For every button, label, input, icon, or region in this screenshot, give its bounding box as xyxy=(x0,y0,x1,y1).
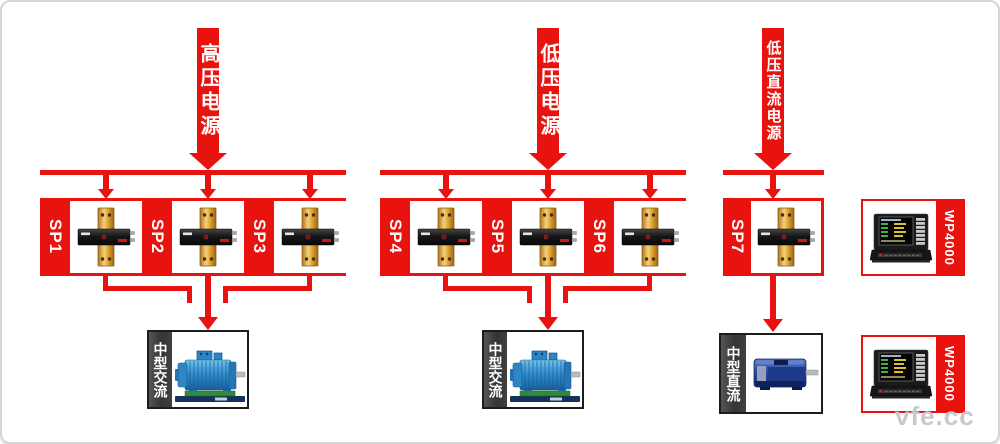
sp-unit-label: SP6 xyxy=(589,219,609,254)
hv-power-banner: 高压电源 xyxy=(197,28,219,153)
banner-label: 高压电源 xyxy=(198,43,218,139)
feed-arrow xyxy=(205,175,211,189)
sp-unit-label: SP1 xyxy=(45,219,65,254)
load-arrow-shaft xyxy=(770,276,776,319)
ac-motor-box-2: 中型交流 xyxy=(482,330,584,409)
lv-power-banner: 低压电源 xyxy=(537,28,559,153)
converge-line xyxy=(443,286,532,291)
wp4000-box-1: WP4000 xyxy=(861,199,965,276)
sp-unit-label: SP4 xyxy=(385,219,405,254)
sp5-label-strip: SP5 xyxy=(482,198,512,276)
feed-arrow xyxy=(307,175,313,189)
diagram-canvas: 高压电源 低压电源 低压直流电源 SP1 xyxy=(0,0,1000,444)
motor-label-strip: 中型交流 xyxy=(484,332,507,407)
bus-line-hv xyxy=(40,170,346,175)
lv-banner-arrowhead-icon xyxy=(529,153,567,170)
converge-line xyxy=(223,286,228,303)
sp6-label-strip: SP6 xyxy=(584,198,614,276)
load-arrow-shaft xyxy=(205,276,211,317)
load-arrowhead-icon xyxy=(198,317,218,330)
sp-unit-label: SP7 xyxy=(727,219,747,254)
sp7-label-strip: SP7 xyxy=(723,198,751,276)
converge-line xyxy=(187,286,192,303)
sp-transducer-image xyxy=(417,207,475,267)
sp-group-1: SP1 SP2 xyxy=(40,198,346,276)
lvdc-banner-arrowhead-icon xyxy=(754,153,792,170)
sp-group-2: SP4 SP5 xyxy=(380,198,686,276)
sp2-device-box xyxy=(172,201,244,273)
motor-type-label: 中型交流 xyxy=(489,342,503,398)
lvdc-power-banner: 低压直流电源 xyxy=(762,28,784,153)
sp-transducer-image xyxy=(77,207,135,267)
feed-arrow xyxy=(443,175,449,189)
feed-arrow xyxy=(647,175,653,189)
ac-motor-image xyxy=(507,332,582,404)
sp-transducer-image xyxy=(281,207,339,267)
converge-line xyxy=(563,286,652,291)
bus-line-lv xyxy=(380,170,686,175)
sp5-device-box xyxy=(512,201,584,273)
motor-label-strip: 中型交流 xyxy=(149,332,172,407)
sp-transducer-image xyxy=(757,207,815,267)
power-analyzer-image xyxy=(865,201,936,274)
sp-unit-label: SP5 xyxy=(487,219,507,254)
sp2-label-strip: SP2 xyxy=(142,198,172,276)
banner-label: 低压电源 xyxy=(538,43,558,139)
sp4-device-box xyxy=(410,201,482,273)
converge-line xyxy=(527,286,532,303)
analyzer-label: WP4000 xyxy=(942,346,957,402)
sp-group-3: SP7 xyxy=(723,198,824,276)
sp6-device-box xyxy=(614,201,686,273)
motor-type-label: 中型直流 xyxy=(727,346,741,402)
sp1-label-strip: SP1 xyxy=(40,198,70,276)
banner-label: 低压直流电源 xyxy=(766,40,781,142)
converge-line xyxy=(563,286,568,303)
motor-type-label: 中型交流 xyxy=(154,342,168,398)
analyzer-label-strip: WP4000 xyxy=(936,201,963,274)
sp1-device-box xyxy=(70,201,142,273)
power-analyzer-image xyxy=(865,337,936,411)
load-arrowhead-icon xyxy=(763,319,783,332)
ac-motor-image xyxy=(172,332,247,404)
dc-motor-image xyxy=(746,335,821,412)
sp3-device-box xyxy=(274,201,346,273)
feed-arrow xyxy=(770,175,776,189)
hv-banner-arrowhead-icon xyxy=(189,153,227,170)
dc-motor-box: 中型直流 xyxy=(719,333,823,414)
sp-transducer-image xyxy=(179,207,237,267)
feed-arrow xyxy=(103,175,109,189)
analyzer-label: WP4000 xyxy=(942,210,957,266)
sp7-device-box xyxy=(751,201,821,273)
load-arrow-shaft xyxy=(545,276,551,317)
ac-motor-box-1: 中型交流 xyxy=(147,330,249,409)
sp3-label-strip: SP3 xyxy=(244,198,274,276)
sp-transducer-image xyxy=(519,207,577,267)
sp4-label-strip: SP4 xyxy=(380,198,410,276)
sp-unit-label: SP2 xyxy=(147,219,167,254)
converge-line xyxy=(223,286,312,291)
motor-label-strip: 中型直流 xyxy=(721,335,746,412)
load-arrowhead-icon xyxy=(538,317,558,330)
converge-line xyxy=(103,286,192,291)
sp-unit-label: SP3 xyxy=(249,219,269,254)
sp-transducer-image xyxy=(621,207,679,267)
feed-arrow xyxy=(545,175,551,189)
analyzer-label-strip: WP4000 xyxy=(936,337,963,411)
watermark: vfe.cc xyxy=(895,401,975,432)
